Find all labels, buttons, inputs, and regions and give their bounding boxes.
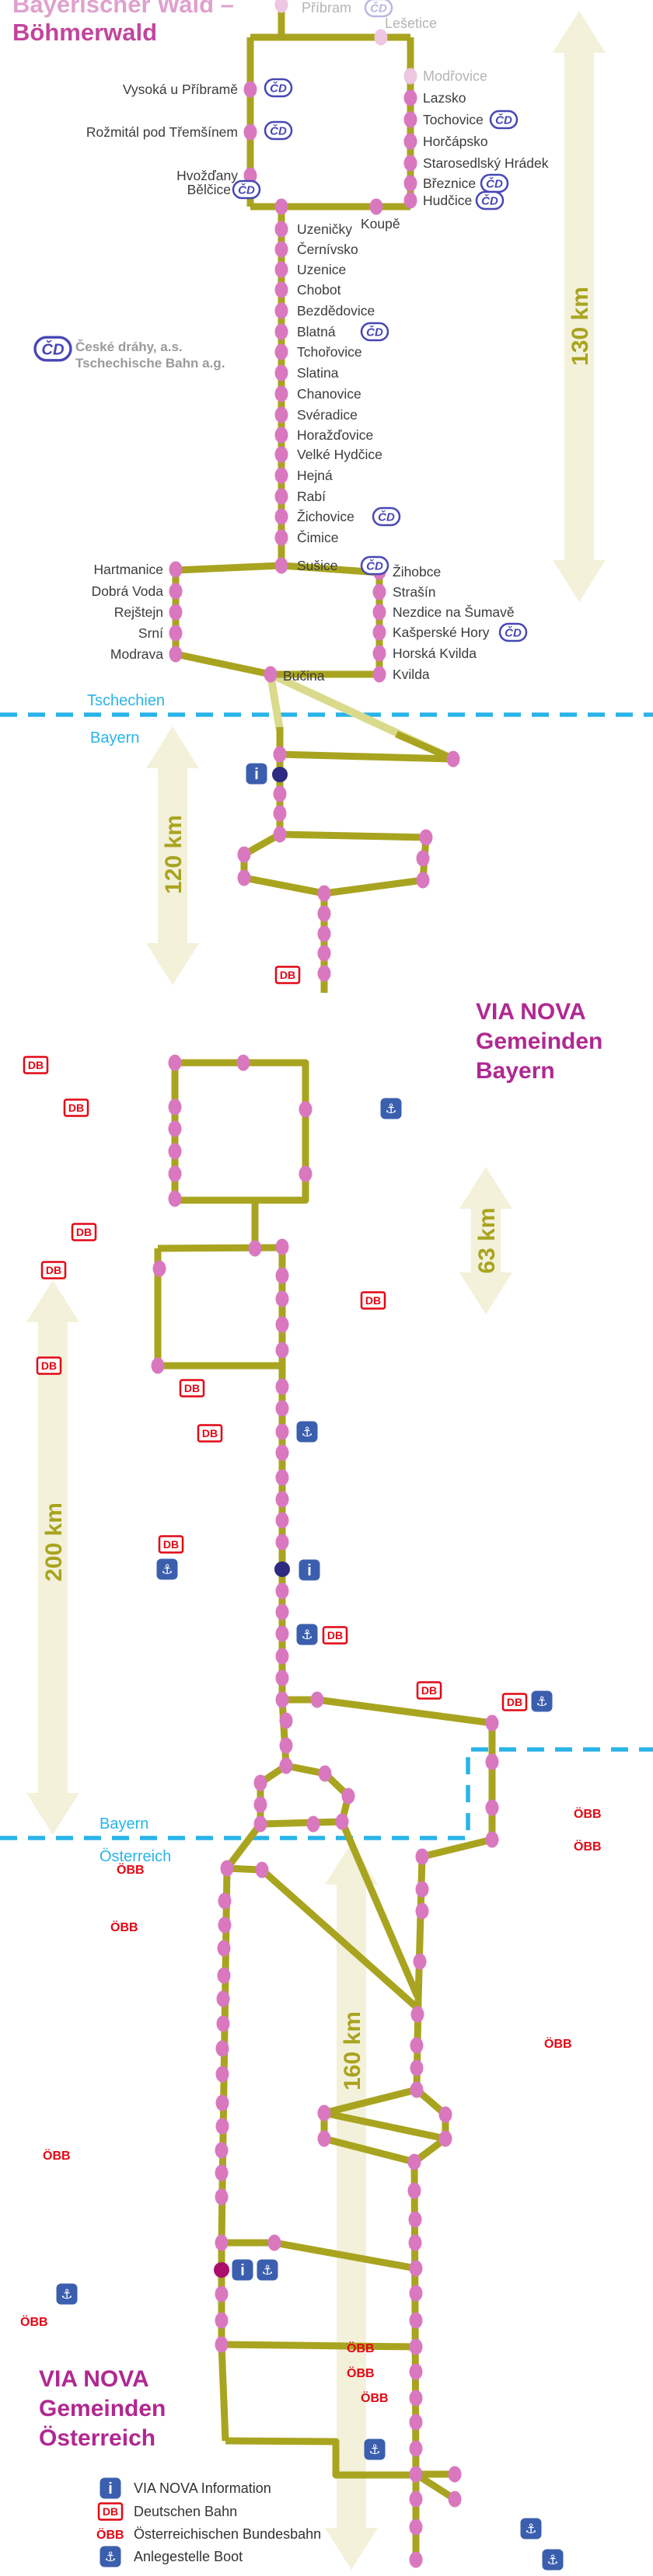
station-dot bbox=[410, 2261, 423, 2277]
station-label: Koupě bbox=[361, 216, 400, 231]
info-icon: i bbox=[232, 2260, 253, 2281]
station-dot bbox=[404, 134, 417, 150]
station-dot bbox=[275, 221, 288, 238]
station-dot bbox=[410, 2390, 423, 2407]
dark-magenta-dot bbox=[214, 2262, 229, 2278]
station-label: Černívsko bbox=[297, 241, 358, 257]
obb-logo-icon: ÖBB bbox=[544, 2036, 572, 2051]
station-dot bbox=[274, 806, 287, 822]
station-dot bbox=[276, 1604, 289, 1620]
station-dot bbox=[408, 2154, 421, 2170]
station-dot bbox=[275, 509, 288, 525]
anchor-icon: ⚓ bbox=[57, 2284, 78, 2305]
cd-logo-text: ČD bbox=[366, 559, 383, 573]
station-label: Tchořovice bbox=[297, 344, 362, 360]
db-logo-icon: DB bbox=[323, 1627, 347, 1644]
anchor-icon: ⚓ bbox=[100, 2546, 121, 2567]
station-dot bbox=[414, 1954, 427, 1970]
station-dot bbox=[215, 2189, 229, 2205]
legend-item: DBDeutschen Bahn bbox=[99, 2504, 237, 2520]
route-line bbox=[225, 2441, 416, 2475]
db-logo-icon: DB bbox=[65, 1100, 88, 1116]
db-logo-text: DB bbox=[365, 1294, 381, 1307]
obb-logo-icon: ÖBB bbox=[43, 2148, 71, 2163]
legend-item: ÖBBÖsterreichischen Bundesbahn bbox=[96, 2526, 321, 2542]
distance-arrow-label: 130 km bbox=[567, 287, 593, 366]
station-label: Hejná bbox=[297, 468, 333, 483]
route-line bbox=[158, 1248, 282, 1248]
station-dot bbox=[318, 945, 331, 962]
station-label: Bučina bbox=[283, 668, 325, 684]
station-dot bbox=[238, 847, 251, 863]
station-dot bbox=[410, 2060, 424, 2076]
station-dot bbox=[221, 1861, 234, 1877]
db-logo-text: DB bbox=[327, 1629, 343, 1641]
labels-layer: Bayerischer Wald –BöhmerwaldPříbramLešet… bbox=[12, 0, 602, 2451]
country-label: Österreich bbox=[100, 1848, 171, 1865]
station-dot bbox=[276, 1692, 289, 1708]
station-dot bbox=[318, 906, 331, 922]
station-label: Žihobce bbox=[393, 564, 441, 580]
obb-logo-icon: ÖBB bbox=[110, 1920, 138, 1934]
station-label: Dobrá Voda bbox=[92, 583, 164, 599]
station-dot bbox=[275, 199, 288, 215]
legend-layer: iVIA NOVA InformationDBDeutschen BahnÖBB… bbox=[96, 2478, 321, 2567]
obb-logo-icon: ÖBB bbox=[574, 1806, 602, 1821]
country-label: Tschechien bbox=[87, 692, 165, 709]
station-dot bbox=[299, 1166, 313, 1182]
station-dot bbox=[410, 2285, 423, 2302]
station-label: Horčápsko bbox=[423, 134, 488, 149]
station-dot bbox=[275, 344, 288, 360]
station-dot bbox=[420, 830, 433, 846]
station-dot bbox=[299, 1102, 313, 1118]
station-dot bbox=[336, 1814, 349, 1830]
anchor-icon: ⚓ bbox=[532, 1691, 553, 1712]
db-logo-text: DB bbox=[46, 1264, 61, 1276]
station-dot bbox=[318, 966, 331, 982]
route-line bbox=[414, 2090, 445, 2162]
station-dot bbox=[311, 1692, 324, 1708]
pale-route-line bbox=[271, 674, 280, 730]
station-dot bbox=[410, 2082, 424, 2098]
station-dot bbox=[410, 2441, 423, 2457]
navy-town-dot bbox=[274, 1561, 290, 1577]
db-logo-text: DB bbox=[507, 1696, 522, 1708]
station-dot bbox=[275, 365, 288, 381]
legend-item: ⚓Anlegestelle Boot bbox=[100, 2546, 243, 2567]
info-icon: i bbox=[299, 1560, 320, 1581]
station-dot bbox=[417, 851, 430, 867]
station-label: Sušice bbox=[297, 558, 338, 573]
station-dot bbox=[404, 155, 417, 172]
station-dot bbox=[264, 667, 278, 683]
anchor-icon-glyph: ⚓ bbox=[61, 2287, 72, 2302]
station-dot bbox=[342, 1788, 355, 1805]
route-line bbox=[317, 1700, 492, 1723]
station-dot bbox=[404, 90, 417, 106]
cd-logo-icon: ČD bbox=[491, 111, 517, 128]
station-dots-layer bbox=[152, 0, 499, 2568]
info-icon-glyph: i bbox=[307, 1562, 312, 1579]
routes-layer bbox=[158, 0, 492, 2560]
station-dot bbox=[276, 1317, 289, 1333]
route-line bbox=[282, 1700, 286, 1766]
station-dot bbox=[169, 1144, 182, 1160]
db-logo-text: DB bbox=[28, 1059, 44, 1071]
faded-station-label: Lešetice bbox=[385, 16, 437, 31]
station-dot bbox=[410, 2364, 423, 2380]
station-dot bbox=[275, 386, 288, 402]
station-dot bbox=[276, 1291, 289, 1307]
map-title-text: Bayern bbox=[476, 1058, 555, 1084]
station-dot bbox=[373, 646, 386, 662]
distance-arrow: 120 km bbox=[146, 726, 199, 985]
map-title-text: Bayerischer Wald – bbox=[12, 0, 234, 18]
cd-logo-icon: ČD bbox=[35, 337, 71, 360]
cd-logo-text: ČD bbox=[270, 124, 287, 138]
db-logo-icon: DB bbox=[42, 1262, 65, 1279]
anchor-icon-glyph: ⚓ bbox=[536, 1694, 547, 1709]
station-dot bbox=[411, 2007, 424, 2023]
station-label: Horská Kvilda bbox=[393, 646, 477, 661]
station-label: Bezdědovice bbox=[297, 303, 375, 319]
cd-logo-icon: ČD bbox=[365, 0, 392, 16]
info-icon-glyph: i bbox=[254, 766, 259, 783]
station-dot bbox=[410, 2339, 423, 2355]
anchor-icon: ⚓ bbox=[521, 2519, 542, 2539]
db-logo-text: DB bbox=[202, 1427, 218, 1439]
station-label: Nezdice na Šumavě bbox=[393, 604, 515, 620]
station-label: Hartmanice bbox=[94, 562, 163, 577]
station-dot bbox=[410, 2491, 423, 2508]
station-dot bbox=[318, 886, 331, 902]
map-title-text: Gemeinden bbox=[476, 1029, 602, 1054]
navy-town-dot bbox=[272, 767, 288, 782]
faded-station-label: Příbram bbox=[302, 0, 351, 16]
station-dot bbox=[276, 1342, 289, 1359]
station-dot bbox=[169, 1121, 182, 1137]
station-label: Strašín bbox=[393, 584, 435, 600]
obb-logo-icon: ÖBB bbox=[361, 2390, 389, 2405]
station-dot bbox=[275, 242, 288, 258]
route-line bbox=[280, 834, 426, 893]
db-logo-text: DB bbox=[421, 1684, 437, 1697]
station-dot bbox=[218, 1893, 232, 1909]
db-logo-text: DB bbox=[103, 2505, 118, 2518]
railway-company-label: Tschechische Bahn a.g. bbox=[75, 356, 225, 371]
db-logo-icon: DB bbox=[503, 1694, 526, 1711]
info-icon-glyph: i bbox=[240, 2262, 245, 2279]
station-dot bbox=[237, 1055, 250, 1071]
station-dot bbox=[254, 1775, 267, 1791]
route-line bbox=[281, 566, 379, 674]
station-dot bbox=[256, 1862, 269, 1878]
station-dot bbox=[486, 1800, 499, 1816]
station-dot bbox=[307, 1816, 320, 1833]
station-dot bbox=[169, 604, 183, 621]
station-dot bbox=[404, 176, 417, 192]
station-dot bbox=[274, 827, 287, 843]
anchor-icon-glyph: ⚓ bbox=[525, 2522, 536, 2536]
cd-logo-icon: ČD bbox=[361, 323, 388, 340]
legend-label: VIA NOVA Information bbox=[134, 2480, 271, 2496]
station-dot bbox=[275, 262, 288, 278]
faded-station-dot bbox=[375, 30, 388, 46]
station-dot bbox=[275, 407, 288, 423]
station-label: Svéradice bbox=[297, 407, 358, 423]
map-title-text: Österreich bbox=[39, 2425, 155, 2451]
station-dot bbox=[276, 1239, 289, 1255]
station-dot bbox=[216, 2118, 229, 2135]
station-dot bbox=[169, 1166, 182, 1182]
anchor-icon-glyph: ⚓ bbox=[368, 2442, 380, 2457]
anchor-icon: ⚓ bbox=[365, 2439, 386, 2460]
station-dot bbox=[276, 1670, 289, 1687]
country-label: Bayern bbox=[90, 729, 139, 747]
db-logo-text: DB bbox=[76, 1226, 92, 1238]
anchor-icon-glyph: ⚓ bbox=[301, 1627, 313, 1642]
cd-logo-text: ČD bbox=[495, 113, 512, 127]
station-dot bbox=[169, 583, 183, 600]
station-label: Hvožďany bbox=[176, 168, 238, 183]
db-logo-text: DB bbox=[184, 1382, 200, 1394]
station-dot bbox=[275, 282, 288, 298]
distance-arrow: 63 km bbox=[459, 1167, 512, 1314]
station-dot bbox=[370, 199, 383, 215]
station-dot bbox=[276, 1379, 289, 1395]
station-dot bbox=[217, 1991, 230, 2007]
station-dot bbox=[276, 1648, 289, 1665]
station-dot bbox=[276, 1445, 289, 1461]
anchor-icon-glyph: ⚓ bbox=[301, 1425, 313, 1439]
obb-logo-icon: ÖBB bbox=[20, 2314, 48, 2329]
db-logo-icon: DB bbox=[361, 1293, 385, 1309]
anchor-icon: ⚓ bbox=[381, 1098, 402, 1119]
db-logo-icon: DB bbox=[99, 2504, 122, 2520]
station-dot bbox=[218, 1968, 231, 1984]
cd-logo-text: ČD bbox=[238, 183, 255, 197]
anchor-icon-glyph: ⚓ bbox=[546, 2553, 558, 2567]
route-line bbox=[417, 1840, 492, 2090]
cd-logo-text: ČD bbox=[370, 2, 387, 16]
station-label: Blatná bbox=[297, 324, 336, 339]
station-dot bbox=[318, 2131, 331, 2147]
station-dot bbox=[416, 1849, 429, 1865]
anchor-icon-glyph: ⚓ bbox=[261, 2263, 273, 2278]
station-label: Tochovice bbox=[423, 112, 484, 127]
station-dot bbox=[276, 1583, 289, 1600]
db-logo-text: DB bbox=[41, 1359, 57, 1372]
distance-arrow: 130 km bbox=[553, 11, 606, 602]
station-dot bbox=[409, 2212, 422, 2228]
map-title-text: Böhmerwald bbox=[12, 19, 157, 46]
station-dot bbox=[486, 1715, 499, 1732]
station-dot bbox=[218, 1941, 231, 1957]
station-label: Hudčice bbox=[423, 193, 472, 208]
route-line bbox=[176, 566, 281, 654]
route-line bbox=[176, 654, 271, 674]
anchor-icon: ⚓ bbox=[297, 1624, 318, 1645]
map-title-text: Gemeinden bbox=[39, 2396, 166, 2421]
station-dot bbox=[169, 646, 183, 663]
station-dot bbox=[417, 872, 430, 889]
route-line bbox=[286, 1766, 348, 1822]
station-label: Kvilda bbox=[393, 667, 430, 682]
distance-arrow-label: 120 km bbox=[161, 815, 187, 894]
db-logo-icon: DB bbox=[159, 1537, 183, 1553]
route-line bbox=[222, 2345, 416, 2347]
station-dot bbox=[275, 468, 288, 484]
cd-logo-icon: ČD bbox=[373, 508, 400, 525]
station-dot bbox=[153, 1261, 166, 1277]
station-dot bbox=[218, 1917, 232, 1934]
station-dot bbox=[416, 1882, 429, 1898]
route-map-svg: 130 km120 km200 km63 km160 km ČDČDČDČDČD… bbox=[0, 0, 653, 2572]
country-borders-layer bbox=[0, 715, 653, 1838]
station-dot bbox=[217, 2016, 230, 2032]
obb-logo-icon: ÖBB bbox=[347, 2341, 375, 2355]
cd-logo-icon: ČD bbox=[265, 122, 292, 139]
db-logo-text: DB bbox=[163, 1538, 179, 1551]
station-dot bbox=[373, 667, 386, 683]
station-label: Vysoká u Příbramě bbox=[123, 82, 238, 97]
station-dot bbox=[244, 82, 257, 98]
cd-logo-icon: ČD bbox=[265, 79, 292, 96]
legend-label: Deutschen Bahn bbox=[134, 2504, 237, 2519]
station-dot bbox=[215, 2286, 229, 2303]
station-dot bbox=[373, 625, 386, 641]
station-dot bbox=[318, 926, 331, 942]
route-line bbox=[260, 1766, 286, 1824]
station-label: Starosedlský Hrádek bbox=[423, 155, 549, 171]
distance-arrow-label: 200 km bbox=[41, 1502, 67, 1582]
station-dot bbox=[169, 562, 183, 578]
station-dot bbox=[449, 2466, 462, 2483]
station-dot bbox=[169, 625, 183, 642]
station-dot bbox=[276, 1492, 289, 1508]
station-label: Rožmitál pod Třemšínem bbox=[86, 124, 238, 140]
station-label: Rejštejn bbox=[114, 604, 163, 620]
cd-logo-text: ČD bbox=[481, 194, 498, 208]
station-dot bbox=[410, 2313, 423, 2329]
cd-logo-icon: ČD bbox=[477, 192, 503, 209]
station-dot bbox=[276, 1268, 289, 1284]
station-label: Modrava bbox=[110, 646, 163, 662]
station-dot bbox=[274, 786, 287, 802]
distance-arrow-label: 160 km bbox=[340, 2011, 365, 2090]
cd-logo-text: ČD bbox=[486, 177, 503, 191]
info-icon-glyph: i bbox=[108, 2480, 113, 2498]
station-label: Bělčice bbox=[187, 182, 231, 197]
station-label: Březnice bbox=[423, 176, 476, 191]
station-dot bbox=[410, 2466, 423, 2483]
via-nova-route-map: 130 km120 km200 km63 km160 km ČDČDČDČDČD… bbox=[0, 0, 653, 2572]
station-dot bbox=[373, 604, 386, 621]
station-label: Velké Hydčice bbox=[297, 447, 382, 462]
db-logo-icon: DB bbox=[24, 1057, 47, 1074]
station-label: Uzenice bbox=[297, 262, 346, 277]
station-dot bbox=[215, 2235, 229, 2251]
station-dot bbox=[276, 1424, 289, 1440]
route-line bbox=[244, 834, 324, 893]
country-label: Bayern bbox=[100, 1815, 148, 1833]
station-label: Rabí bbox=[297, 489, 326, 504]
anchor-icon-glyph: ⚓ bbox=[104, 2550, 116, 2564]
station-dot bbox=[486, 1754, 499, 1770]
station-dot bbox=[409, 2235, 422, 2251]
db-logo-text: DB bbox=[280, 969, 295, 981]
station-dot bbox=[216, 2095, 229, 2111]
station-dot bbox=[244, 124, 257, 141]
station-dot bbox=[254, 1816, 267, 1833]
db-logo-icon: DB bbox=[37, 1358, 61, 1374]
station-dot bbox=[152, 1358, 165, 1374]
station-label: Chanovice bbox=[297, 386, 361, 402]
route-line bbox=[280, 754, 453, 759]
station-dot bbox=[319, 1766, 332, 1782]
map-title-text: VIA NOVA bbox=[39, 2366, 149, 2392]
station-dot bbox=[404, 112, 417, 128]
station-dot bbox=[280, 1738, 293, 1754]
db-logo-text: DB bbox=[68, 1102, 84, 1114]
station-dot bbox=[275, 489, 288, 505]
cd-logo-text: ČD bbox=[270, 82, 287, 96]
station-dot bbox=[215, 2143, 229, 2159]
info-icon: i bbox=[246, 764, 267, 785]
station-dot bbox=[276, 1534, 289, 1551]
station-dot bbox=[410, 2552, 423, 2568]
station-dot bbox=[410, 2038, 424, 2054]
station-dot bbox=[486, 1832, 499, 1848]
station-dot bbox=[254, 1797, 267, 1813]
railway-company-label: České dráhy, a.s. bbox=[75, 339, 183, 354]
station-dot bbox=[280, 1758, 293, 1774]
station-label: Horažďovice bbox=[297, 427, 373, 443]
station-dot bbox=[416, 1903, 429, 1920]
legend-label: Österreichischen Bundesbahn bbox=[134, 2526, 321, 2542]
station-dot bbox=[275, 427, 288, 444]
station-dot bbox=[318, 2105, 331, 2122]
anchor-icon: ⚓ bbox=[157, 1559, 178, 1580]
route-line bbox=[175, 1063, 306, 1200]
station-dot bbox=[408, 2183, 421, 2199]
station-dot bbox=[216, 2066, 229, 2083]
route-line bbox=[260, 1822, 342, 1824]
station-label: Čimice bbox=[297, 529, 338, 545]
station-dot bbox=[216, 2041, 229, 2057]
station-dot bbox=[238, 870, 251, 886]
station-dot bbox=[439, 2131, 452, 2147]
station-dot bbox=[276, 1513, 289, 1529]
faded-station-dot bbox=[275, 0, 288, 13]
station-dot bbox=[280, 1713, 293, 1729]
station-dot bbox=[268, 2235, 281, 2251]
station-dot bbox=[439, 2107, 452, 2123]
station-dot bbox=[249, 1241, 262, 1257]
station-dot bbox=[404, 193, 417, 209]
obb-logo-icon: ÖBB bbox=[574, 1839, 602, 1854]
station-label: Lazsko bbox=[423, 90, 466, 106]
station-label: Chobot bbox=[297, 282, 341, 298]
faded-station-label: Modřovice bbox=[423, 68, 487, 84]
db-logo-icon: DB bbox=[72, 1224, 96, 1241]
db-logo-icon: DB bbox=[198, 1426, 222, 1442]
station-dot bbox=[274, 747, 287, 763]
anchor-icon-glyph: ⚓ bbox=[161, 1562, 173, 1577]
station-dot bbox=[275, 558, 288, 574]
station-label: Uzeničky bbox=[297, 221, 352, 237]
